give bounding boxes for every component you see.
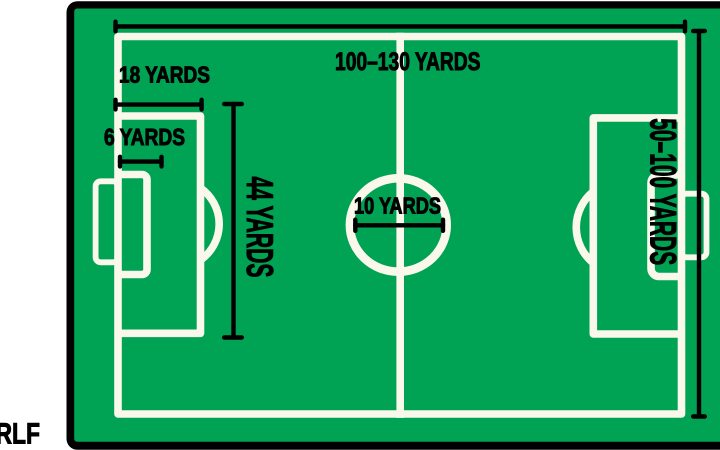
svg-text:44 YARDS: 44 YARDS: [239, 177, 281, 278]
svg-text:50–100 YARDS: 50–100 YARDS: [643, 118, 684, 265]
svg-text:6 YARDS: 6 YARDS: [104, 124, 185, 150]
svg-text:10 YARDS: 10 YARDS: [354, 193, 441, 219]
svg-text:RLF: RLF: [0, 418, 40, 450]
svg-text:18 YARDS: 18 YARDS: [119, 62, 210, 88]
svg-text:100–130 YARDS: 100–130 YARDS: [335, 48, 481, 76]
